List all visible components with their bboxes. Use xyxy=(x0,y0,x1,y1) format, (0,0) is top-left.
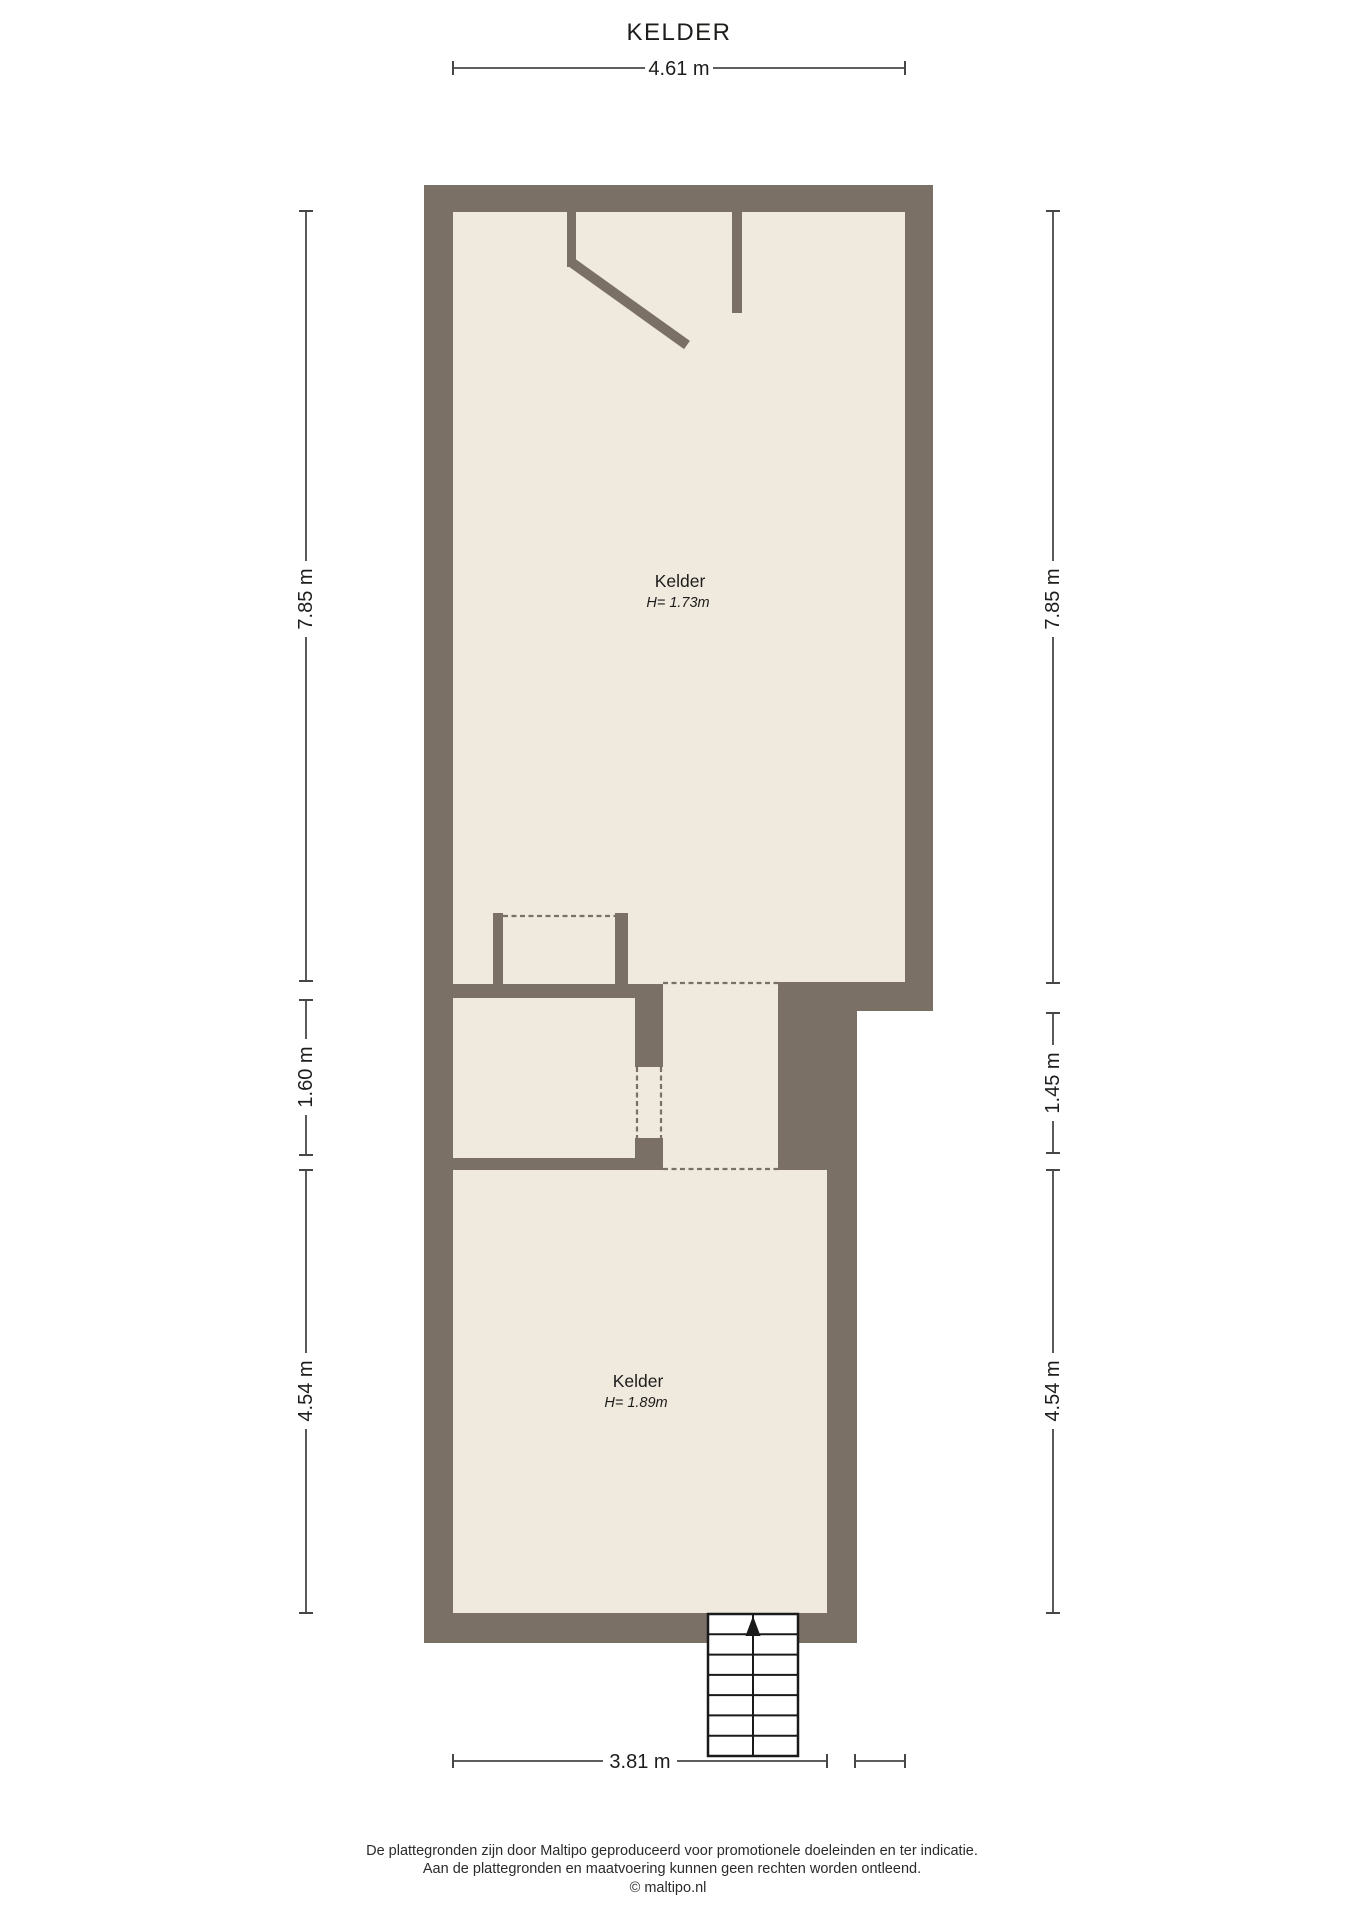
dimension-right: 7.85 m 1.45 m 4.54 m xyxy=(1042,211,1064,1613)
step-wall-horizontal xyxy=(778,982,933,1011)
dim-label-top: 4.61 m xyxy=(648,58,709,80)
mid-wall-lower xyxy=(424,1158,663,1170)
lower-room-floor xyxy=(453,1170,827,1613)
small-room-wall-lower xyxy=(635,1138,663,1158)
small-room-door-opening-floor xyxy=(635,1067,663,1138)
dim-label-left-785: 7.85 m xyxy=(295,568,317,629)
footer-disclaimer-line1: De plattegronden zijn door Maltipo gepro… xyxy=(366,1843,978,1859)
room-name: Kelder xyxy=(613,1371,664,1391)
passage-floor xyxy=(663,982,778,1170)
dim-label-right-785: 7.85 m xyxy=(1042,568,1064,629)
alcove-stub-right xyxy=(615,913,628,984)
top-wall xyxy=(424,185,933,212)
room-height: H= 1.73m xyxy=(646,595,709,611)
floorplan-drawing: 4.61 m 3.81 m 7.85 m 1.60 m xyxy=(0,0,1358,1920)
dim-label-bottom: 3.81 m xyxy=(609,1751,670,1773)
dimension-top: 4.61 m xyxy=(453,58,905,80)
right-wall-lower xyxy=(827,1170,857,1643)
stairs xyxy=(708,1614,798,1756)
dim-label-right-145: 1.45 m xyxy=(1042,1052,1064,1113)
small-room-floor xyxy=(453,998,635,1158)
dimension-left: 7.85 m 1.60 m 4.54 m xyxy=(295,211,317,1613)
page-title: KELDER xyxy=(626,19,731,46)
mid-wall-upper xyxy=(424,984,663,998)
footer: De plattegronden zijn door Maltipo gepro… xyxy=(366,1843,978,1896)
dim-label-right-454: 4.54 m xyxy=(1042,1360,1064,1421)
dimension-bottom: 3.81 m xyxy=(453,1751,905,1773)
left-wall xyxy=(424,185,453,1643)
room-height: H= 1.89m xyxy=(604,1395,667,1411)
alcove-stub-left xyxy=(493,913,503,984)
dim-label-left-454: 4.54 m xyxy=(295,1360,317,1421)
footer-disclaimer-line2: Aan de plattegronden en maatvoering kunn… xyxy=(423,1861,921,1877)
room-name: Kelder xyxy=(655,571,706,591)
dim-label-left-160: 1.60 m xyxy=(295,1046,317,1107)
small-room-wall-upper xyxy=(635,998,663,1067)
footer-copyright: © maltipo.nl xyxy=(630,1880,707,1896)
floorplan-page: 4.61 m 3.81 m 7.85 m 1.60 m xyxy=(0,0,1358,1920)
right-wall-upper xyxy=(905,185,933,1011)
step-wall-vertical xyxy=(778,1011,857,1170)
door-jamb-right xyxy=(732,212,742,313)
